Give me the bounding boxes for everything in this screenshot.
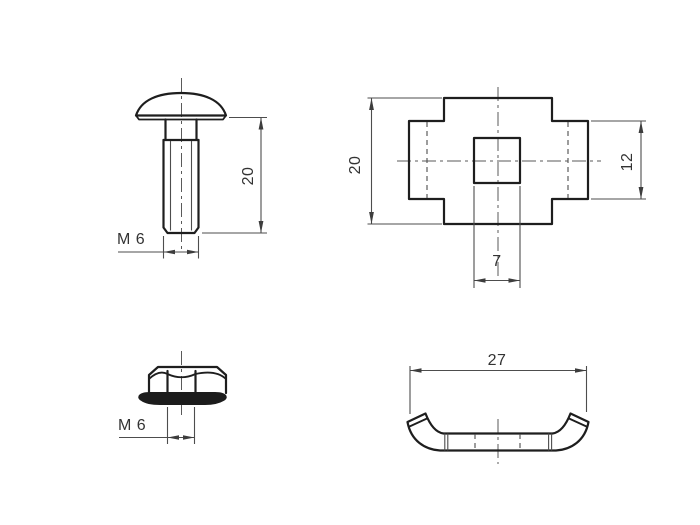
arrow-right-icon — [183, 435, 195, 439]
plate-slot-label: 7 — [477, 252, 517, 272]
arrow-left-icon — [164, 250, 176, 254]
drawing-linework — [0, 0, 700, 525]
technical-drawing-canvas: 20 M 6 20 12 7 M 6 27 — [0, 0, 700, 525]
plate-height-label: 20 — [346, 145, 366, 185]
plate-wing-label: 12 — [618, 142, 638, 182]
arrow-up-icon — [369, 98, 374, 110]
arrow-up-icon — [639, 121, 644, 133]
spring-clip-view — [408, 366, 589, 464]
arrow-down-icon — [369, 212, 374, 224]
bolt-thread-label: M 6 — [117, 232, 145, 248]
nut-flange — [139, 393, 226, 405]
arrow-up-icon — [259, 118, 264, 130]
arrow-down-icon — [639, 187, 644, 199]
arrow-left-icon — [168, 435, 180, 439]
arrow-down-icon — [259, 221, 264, 233]
clip-width-extension-lines — [410, 366, 587, 414]
bolt-length-label: 20 — [239, 156, 259, 196]
arrow-right-icon — [575, 368, 587, 372]
nut-thread-label: M 6 — [118, 418, 146, 434]
nut-hex-outline — [149, 367, 226, 393]
plate-hidden-lines — [427, 122, 568, 198]
arrow-right-icon — [509, 278, 521, 282]
arrow-left-icon — [474, 278, 486, 282]
nut-chamfer-arcs — [149, 373, 226, 379]
arrow-left-icon — [410, 368, 422, 372]
arrow-right-icon — [187, 250, 199, 254]
clip-width-label: 27 — [477, 351, 517, 371]
plate-slot-extension-lines — [474, 186, 520, 288]
